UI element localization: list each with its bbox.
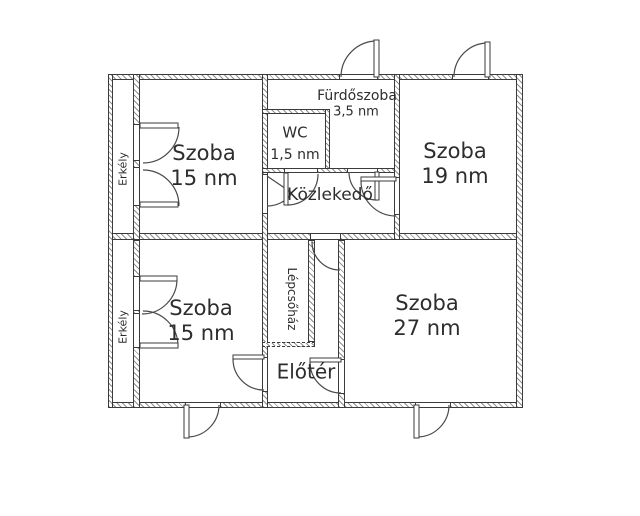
door-leaf xyxy=(361,177,396,181)
room-area-szoba-top-right: 19 nm xyxy=(421,164,488,188)
room-label-wc: WC xyxy=(282,124,307,141)
door-window-swings xyxy=(0,0,640,516)
door-arc xyxy=(233,359,264,390)
window-arc xyxy=(187,405,219,437)
room-area-furdoszoba: 3,5 nm xyxy=(333,106,379,121)
room-label-furdoszoba: Fürdőszoba xyxy=(317,88,397,104)
room-label-szoba-top-right: Szoba xyxy=(423,139,486,163)
window-leaf xyxy=(374,40,379,77)
door-leaf xyxy=(140,276,177,281)
window-arc xyxy=(341,41,377,77)
window-leaf xyxy=(485,42,490,77)
door-arc xyxy=(312,242,340,270)
window-leaf xyxy=(414,405,419,438)
room-label-lepcsohaz: Lépcsőház xyxy=(284,268,298,331)
window-arc xyxy=(417,405,449,437)
room-area-wc: 1,5 nm xyxy=(270,147,319,163)
room-label-szoba-bottom-right: Szoba xyxy=(395,291,458,315)
window-arc xyxy=(454,43,488,77)
door-leaf xyxy=(140,123,178,128)
room-label-erkely-top: Erkély xyxy=(118,152,131,186)
room-area-szoba-top-left: 15 nm xyxy=(170,166,237,190)
room-label-kozlekedo: Közlekedő xyxy=(287,186,373,206)
room-label-erkely-bottom: Erkély xyxy=(118,310,131,344)
room-area-szoba-bottom-left: 15 nm xyxy=(167,321,234,345)
room-area-szoba-bottom-right: 27 nm xyxy=(393,316,460,340)
door-leaf xyxy=(375,172,379,200)
floor-plan: Szoba 15 nm Szoba 19 nm Szoba 15 nm Szob… xyxy=(0,0,640,516)
window-leaf xyxy=(184,405,189,438)
door-leaf xyxy=(233,355,264,359)
room-label-eloter: Előtér xyxy=(277,361,336,384)
room-label-szoba-bottom-left: Szoba xyxy=(169,296,232,320)
door-leaf xyxy=(140,202,178,207)
room-label-szoba-top-left: Szoba xyxy=(172,141,235,165)
